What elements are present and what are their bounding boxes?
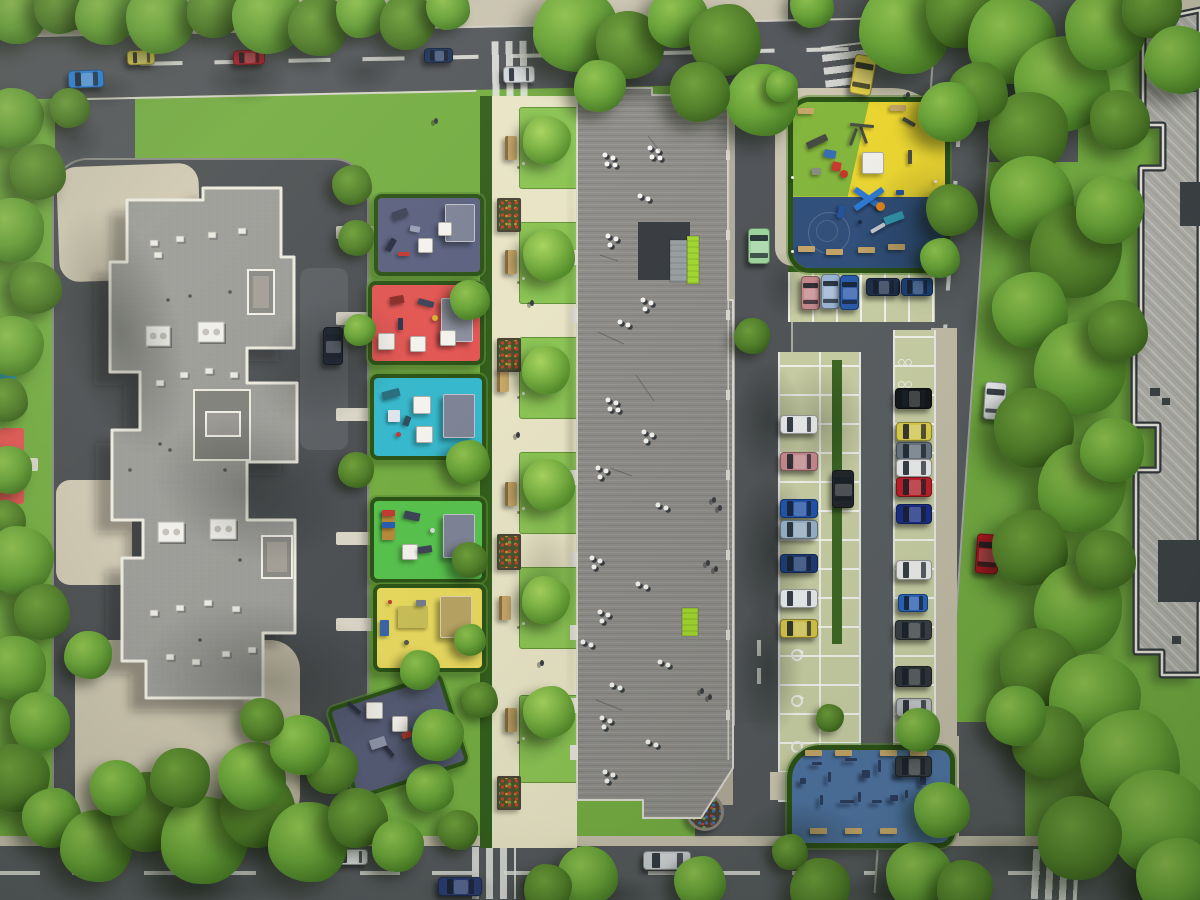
roof-vent-cap	[656, 503, 661, 508]
tree	[332, 165, 372, 205]
car	[895, 756, 932, 777]
roof-vent-cap	[608, 719, 613, 724]
tree	[10, 262, 62, 314]
roof-vent-cap	[603, 770, 608, 775]
roof-vent-cap	[604, 469, 609, 474]
car-rear-window	[921, 390, 925, 407]
roof-vent-cap	[642, 430, 647, 435]
tree	[406, 764, 454, 812]
car	[898, 594, 928, 612]
car-rear-window	[921, 506, 925, 522]
tree	[240, 698, 284, 742]
roof-vent-cap	[658, 660, 663, 665]
roof-vent-cap	[596, 466, 601, 471]
car-roof	[137, 52, 146, 62]
car	[895, 620, 932, 640]
car-rear-window	[807, 621, 811, 636]
car-roof	[909, 445, 921, 458]
tree	[64, 631, 112, 679]
car-windshield	[907, 280, 912, 294]
tree	[338, 452, 374, 488]
roof-vent-cap	[581, 640, 586, 645]
roof-vent-cap	[608, 243, 613, 248]
car-roof	[348, 852, 358, 863]
ac-fan	[213, 329, 220, 336]
car-roof	[913, 281, 923, 294]
tree	[454, 624, 486, 656]
tree	[896, 708, 940, 752]
car	[832, 470, 854, 508]
car-windshield	[834, 477, 852, 483]
car-windshield	[904, 596, 908, 610]
car	[901, 278, 933, 296]
roof-vent-cap	[666, 663, 671, 668]
car-rear-window	[921, 758, 925, 775]
car	[896, 560, 932, 580]
car-rear-window	[919, 596, 922, 610]
tree	[926, 184, 978, 236]
car	[780, 499, 818, 518]
car-windshield	[902, 758, 908, 775]
car-rear-window	[921, 444, 925, 458]
car-windshield	[787, 522, 793, 537]
car-roof	[909, 425, 921, 439]
car-roof	[909, 563, 921, 578]
car	[896, 459, 932, 477]
roof-vent	[205, 368, 213, 374]
parapet-line	[728, 95, 730, 760]
car-rear-window	[359, 851, 363, 863]
roof-vent-cap	[641, 298, 646, 303]
roof-vent-cap	[638, 194, 643, 199]
car-windshield	[803, 283, 818, 288]
car-windshield	[787, 417, 793, 432]
balcony-divider	[726, 310, 730, 320]
car-roof	[879, 281, 890, 294]
car	[840, 275, 859, 310]
car	[821, 274, 840, 309]
roof-vent-cap	[606, 234, 611, 239]
tree	[10, 692, 70, 752]
roof-vent-cap	[589, 643, 594, 648]
roof-vent-cap	[618, 320, 623, 325]
tree	[1080, 418, 1144, 482]
car-rear-window	[921, 424, 925, 439]
center-building-roof	[577, 88, 733, 818]
car-rear-window	[325, 354, 341, 358]
person	[706, 560, 710, 566]
tree	[14, 584, 70, 640]
car-windshield	[823, 281, 838, 286]
person	[714, 566, 718, 572]
roof-vent-cap	[605, 162, 610, 167]
roof-vent	[230, 372, 238, 378]
car-roof	[326, 341, 341, 353]
tree	[772, 834, 808, 870]
car-roof	[909, 623, 921, 638]
tree	[918, 82, 978, 142]
tree	[523, 459, 575, 511]
car-rear-window	[807, 454, 811, 469]
roof-vent	[176, 236, 184, 242]
cast-shadow	[563, 110, 579, 760]
balcony-divider	[726, 150, 730, 160]
car	[896, 504, 932, 524]
roof-vent-cap	[606, 613, 611, 618]
car-rear-window	[921, 622, 925, 638]
car-windshield	[903, 444, 908, 458]
car	[780, 520, 818, 539]
tree	[150, 748, 210, 808]
car-windshield	[75, 72, 81, 86]
tree	[450, 280, 490, 320]
car	[780, 619, 818, 638]
car-roof	[794, 622, 806, 636]
roof-dot	[188, 294, 192, 298]
car-rear-window	[823, 299, 838, 303]
tree	[986, 686, 1046, 746]
car-rear-window	[750, 253, 768, 257]
car	[68, 69, 105, 88]
roof-vent-cap	[618, 686, 623, 691]
car-roof	[751, 241, 768, 253]
roof-vent-cap	[590, 556, 595, 561]
car	[780, 415, 818, 434]
car-windshield	[902, 390, 908, 407]
car-rear-window	[890, 280, 894, 294]
car-windshield	[239, 52, 244, 63]
person	[540, 660, 544, 666]
car-roof	[661, 854, 677, 868]
car-rear-window	[977, 562, 996, 568]
car	[801, 276, 820, 310]
car-roof	[909, 391, 921, 407]
car-rear-window	[803, 300, 818, 304]
car	[895, 666, 932, 687]
tree	[522, 346, 570, 394]
balcony-divider	[726, 630, 730, 640]
car-windshield	[325, 334, 341, 340]
car-windshield	[903, 424, 908, 439]
roof-vent-cap	[602, 725, 607, 730]
roof-vent	[238, 228, 246, 234]
car-windshield	[903, 479, 908, 495]
roof-structure	[1180, 182, 1200, 226]
car-windshield	[750, 235, 768, 240]
roof-vent-cap	[643, 307, 648, 312]
car-roof	[909, 462, 921, 475]
car-roof	[81, 72, 93, 85]
entrance-canopy	[670, 240, 687, 282]
tree	[670, 62, 730, 122]
car-windshield	[430, 50, 435, 61]
car-windshield	[509, 68, 514, 81]
roof-vent-cap	[649, 301, 654, 306]
person	[434, 118, 438, 124]
car-windshield	[903, 562, 908, 578]
tree	[1088, 300, 1148, 360]
tree	[920, 238, 960, 278]
car-rear-window	[807, 501, 811, 516]
car-windshield	[787, 591, 793, 606]
tree	[338, 220, 374, 256]
car-rear-window	[807, 522, 811, 537]
car-roof	[245, 52, 256, 62]
roof-vent-cap	[598, 610, 603, 615]
person	[712, 497, 716, 503]
roof-vent-cap	[613, 163, 618, 168]
car-rear-window	[921, 479, 925, 495]
car	[438, 877, 482, 896]
car-windshield	[447, 879, 454, 894]
car-windshield	[787, 454, 793, 469]
person	[906, 92, 910, 98]
car-roof	[804, 289, 818, 300]
roof-dot	[228, 290, 232, 294]
roof-vent-cap	[644, 585, 649, 590]
balcony-divider	[726, 390, 730, 400]
car-roof	[843, 288, 857, 299]
tree	[523, 229, 575, 281]
car	[748, 228, 770, 264]
car-windshield	[842, 282, 857, 287]
roof-vent-cap	[600, 716, 605, 721]
car-windshield	[787, 501, 793, 516]
roof-vent-cap	[610, 683, 615, 688]
car-roof	[909, 480, 921, 495]
person	[700, 688, 704, 694]
tree	[50, 88, 90, 128]
roof-vent-cap	[644, 439, 649, 444]
car-roof	[909, 759, 921, 775]
car	[896, 422, 932, 441]
roof-vent-cap	[614, 237, 619, 242]
tree	[914, 782, 970, 838]
entrance-canopy	[682, 608, 698, 636]
balcony-divider	[726, 710, 730, 720]
car-roof	[794, 592, 806, 606]
car-windshield	[787, 621, 793, 636]
person	[530, 300, 534, 306]
car-roof	[794, 418, 806, 432]
car-rear-window	[469, 879, 474, 894]
tree	[90, 760, 146, 816]
car-roof	[794, 523, 806, 537]
ac-fan	[202, 329, 209, 336]
roof-vent-cap	[606, 398, 611, 403]
roof-structure	[1150, 388, 1160, 396]
roof-vent	[208, 232, 216, 238]
tree	[734, 318, 770, 354]
car-windshield	[873, 280, 878, 294]
car-roof	[454, 880, 468, 894]
roof-vent-cap	[598, 475, 603, 480]
car	[424, 48, 453, 64]
car-rear-window	[834, 497, 852, 501]
tree	[10, 144, 66, 200]
car-windshield	[652, 853, 659, 868]
car-rear-window	[93, 72, 98, 86]
car-rear-window	[444, 50, 447, 61]
tree	[1090, 90, 1150, 150]
car-roof	[824, 287, 838, 298]
car	[323, 327, 343, 365]
car-windshield	[787, 556, 793, 571]
car-roof	[794, 557, 806, 571]
car-rear-window	[807, 417, 811, 432]
roof-vent-cap	[664, 506, 669, 511]
car-roof	[435, 50, 444, 60]
roof-vent-cap	[611, 156, 616, 161]
car-roof	[909, 507, 921, 522]
person	[708, 694, 712, 700]
car-windshield	[902, 668, 908, 685]
car-roof	[835, 484, 852, 496]
cast-shadow	[330, 50, 400, 95]
car-roof	[853, 68, 872, 84]
balcony-divider	[726, 470, 730, 480]
car-rear-window	[842, 300, 857, 304]
car-roof	[794, 455, 806, 469]
roof-vent-cap	[598, 559, 603, 564]
car-roof	[909, 669, 921, 685]
roof-vent-cap	[605, 779, 610, 784]
roof-vent-cap	[611, 773, 616, 778]
roof-vent-cap	[600, 619, 605, 624]
car	[780, 452, 818, 471]
roof-vent-cap	[654, 743, 659, 748]
car-roof	[794, 502, 806, 516]
car-windshield	[902, 622, 908, 638]
car	[503, 66, 535, 84]
roof-structure	[1158, 540, 1200, 602]
car-roof	[515, 68, 525, 80]
car-rear-window	[921, 562, 925, 578]
car-rear-window	[921, 461, 925, 475]
roof-vent-cap	[658, 156, 663, 161]
tree	[674, 856, 726, 900]
aerial-site-render	[0, 0, 1200, 900]
car-rear-window	[921, 668, 925, 685]
roof-vent-cap	[650, 155, 655, 160]
car-windshield	[903, 506, 908, 522]
car-rear-window	[525, 68, 529, 81]
tree	[523, 686, 575, 738]
tree	[446, 440, 490, 484]
tree	[438, 810, 478, 850]
roof-vent-cap	[603, 153, 608, 158]
car	[780, 589, 818, 608]
roof-structure	[1172, 636, 1181, 644]
roof-vent-cap	[646, 740, 651, 745]
roof-dot	[128, 468, 132, 472]
car-windshield	[903, 461, 908, 475]
roof-vent-cap	[650, 433, 655, 438]
person	[516, 432, 520, 438]
car	[866, 278, 900, 296]
car-rear-window	[807, 591, 811, 606]
tree	[462, 682, 498, 718]
car	[896, 442, 932, 460]
roof-vent-cap	[648, 146, 653, 151]
car-rear-window	[924, 280, 928, 294]
roof-structure	[1162, 398, 1170, 405]
roof-vent-cap	[636, 582, 641, 587]
car	[895, 388, 932, 409]
tree	[452, 542, 488, 578]
balcony-divider	[726, 550, 730, 560]
tree	[1076, 530, 1136, 590]
roof-vent-cap	[626, 323, 631, 328]
roof-vent-cap	[592, 565, 597, 570]
roof-vent-cap	[614, 401, 619, 406]
roof-vent-cap	[608, 407, 613, 412]
balcony-divider	[726, 230, 730, 240]
car-roof	[909, 597, 919, 610]
roof-vent-cap	[616, 408, 621, 413]
car	[896, 477, 932, 497]
car-rear-window	[807, 556, 811, 571]
person	[718, 505, 722, 511]
roof-vent-cap	[646, 197, 651, 202]
roof-shaft-top	[253, 276, 269, 308]
car	[780, 554, 818, 573]
